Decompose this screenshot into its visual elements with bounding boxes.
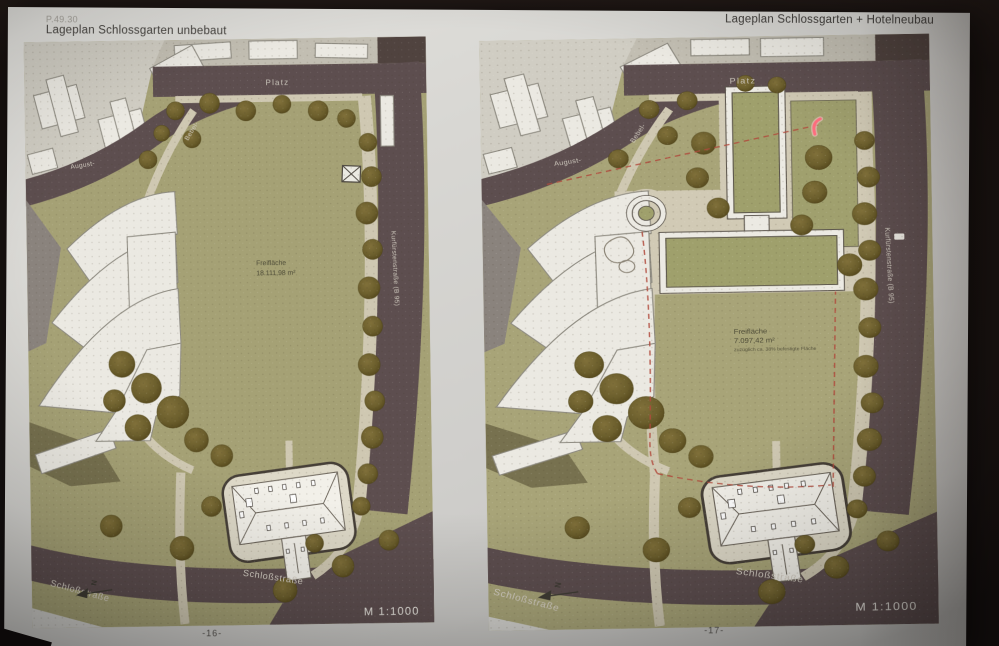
page-title-right: Lageplan Schlossgarten + Hotelneubau xyxy=(725,13,934,26)
scale-label: M 1:1000 xyxy=(855,600,918,613)
paper-sheet: P.49.30 Lageplan Schlossgarten unbebaut … xyxy=(4,7,970,646)
freiflaeche-label: Freifläche xyxy=(734,327,768,336)
freiflaeche-label: Freifläche xyxy=(256,260,286,267)
map-texture xyxy=(479,34,939,631)
site-plan-unbuilt: Platz August- Bebel- Kurfürstenstraße (B… xyxy=(24,36,435,628)
page-title-left: Lageplan Schlossgarten unbebaut xyxy=(46,24,227,37)
freiflaeche-area-value: 7.097,42 m² xyxy=(734,336,775,345)
platz-label: Platz xyxy=(265,78,289,87)
site-plan-hotel: Platz August- Bebel- Kurfürstenstraße (B… xyxy=(479,34,939,631)
drawing-code: P.49.30 xyxy=(46,14,78,24)
photo-of-presentation-slide: P.49.30 Lageplan Schlossgarten unbebaut … xyxy=(0,0,999,646)
platz-label: Platz xyxy=(730,76,757,86)
page-number-right: -17- xyxy=(704,625,724,635)
map-texture xyxy=(24,36,435,628)
scale-label: M 1:1000 xyxy=(364,605,420,618)
page-number-left: -16- xyxy=(202,628,222,638)
freiflaeche-area-value: 18.111,98 m² xyxy=(256,270,296,278)
